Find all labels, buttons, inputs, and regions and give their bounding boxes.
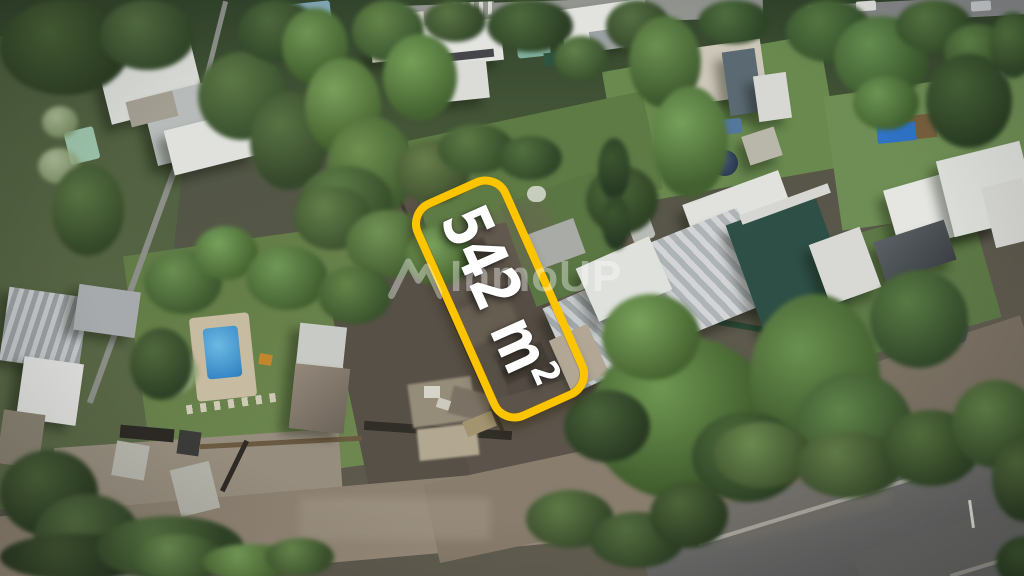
tree-canopy bbox=[564, 390, 650, 462]
debris-white bbox=[424, 386, 440, 398]
tree-canopy bbox=[926, 54, 1012, 148]
tree-canopy bbox=[870, 270, 968, 368]
flowering-bush bbox=[42, 106, 78, 138]
gazebo-roof bbox=[289, 363, 350, 433]
tree-canopy bbox=[424, 0, 486, 42]
house-bl-roof-c bbox=[73, 284, 141, 338]
concrete-ramp bbox=[111, 440, 150, 480]
watermark-text: InmoUP bbox=[450, 252, 622, 302]
tree-canopy bbox=[100, 0, 195, 70]
trailer-dark bbox=[176, 430, 201, 457]
garden-furniture bbox=[527, 186, 546, 202]
median-scrub bbox=[650, 482, 728, 548]
tree-canopy bbox=[853, 76, 919, 130]
house-modern-wing bbox=[753, 72, 792, 122]
tree-canopy bbox=[383, 34, 457, 120]
tree-canopy bbox=[652, 86, 728, 198]
car-street-top-2 bbox=[971, 0, 992, 11]
road-mottle-1 bbox=[300, 498, 490, 540]
tree-canopy bbox=[52, 164, 124, 256]
tree-canopy bbox=[554, 36, 608, 80]
garden-shed bbox=[296, 323, 347, 370]
pool-toy bbox=[258, 353, 273, 366]
hedge-column bbox=[598, 138, 630, 200]
tree-canopy bbox=[246, 246, 328, 310]
tree-canopy bbox=[602, 294, 700, 380]
hedge-row bbox=[498, 136, 562, 180]
tree-canopy bbox=[318, 266, 392, 324]
watermark: InmoUP bbox=[388, 252, 622, 302]
tree-canopy bbox=[266, 538, 334, 576]
tree-canopy bbox=[130, 328, 192, 400]
mountains-icon bbox=[388, 255, 442, 299]
aerial-photo: 542 m² InmoUP bbox=[0, 0, 1024, 576]
hedge-column bbox=[602, 196, 630, 250]
tree-canopy bbox=[698, 0, 770, 44]
pool-left bbox=[202, 325, 242, 379]
